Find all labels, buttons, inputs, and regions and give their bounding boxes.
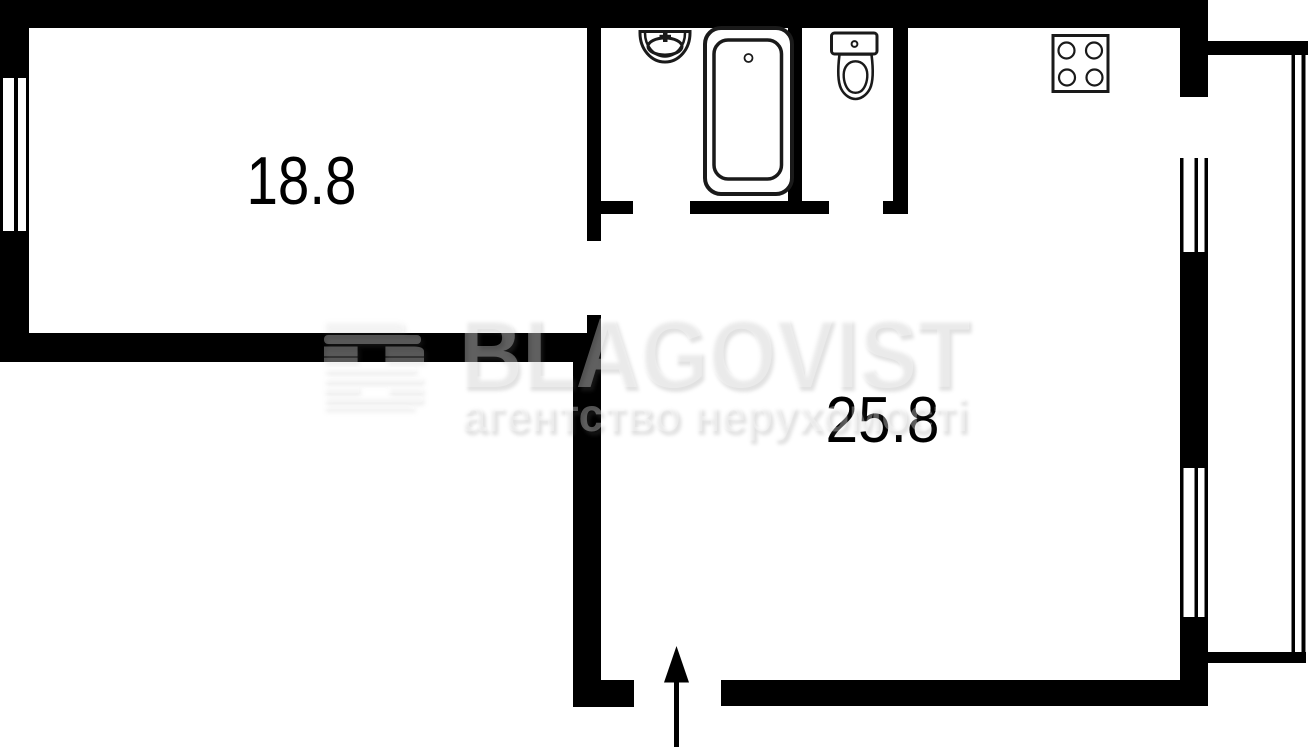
svg-text:18.8: 18.8	[247, 143, 357, 219]
svg-text:агентство нерухомості: агентство нерухомості	[461, 389, 968, 441]
